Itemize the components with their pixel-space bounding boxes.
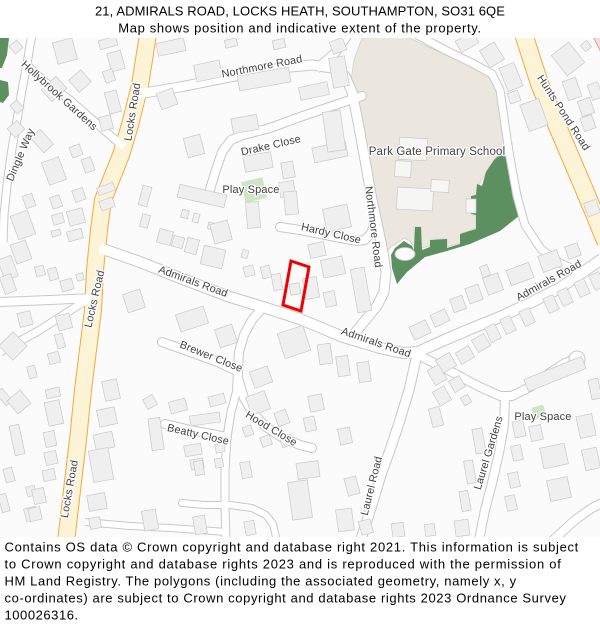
svg-text:100026316.: 100026316.	[5, 607, 79, 622]
svg-text:co-ordinates) are subject to C: co-ordinates) are subject to Crown copyr…	[5, 590, 567, 605]
svg-text:Contains OS data © Crown copyr: Contains OS data © Crown copyright and d…	[5, 539, 579, 554]
svg-text:to Crown copyright and databas: to Crown copyright and database rights 2…	[5, 556, 562, 571]
svg-text:Play Space: Play Space	[514, 411, 571, 423]
svg-text:HM Land Registry. The polygons: HM Land Registry. The polygons (includin…	[5, 573, 517, 588]
svg-text:Park Gate Primary School: Park Gate Primary School	[369, 146, 506, 158]
svg-text:Play Space: Play Space	[222, 184, 279, 196]
svg-text:Map shows position and indicat: Map shows position and indicative extent…	[118, 20, 481, 35]
svg-text:21, ADMIRALS ROAD, LOCKS HEATH: 21, ADMIRALS ROAD, LOCKS HEATH, SOUTHAMP…	[95, 3, 505, 18]
